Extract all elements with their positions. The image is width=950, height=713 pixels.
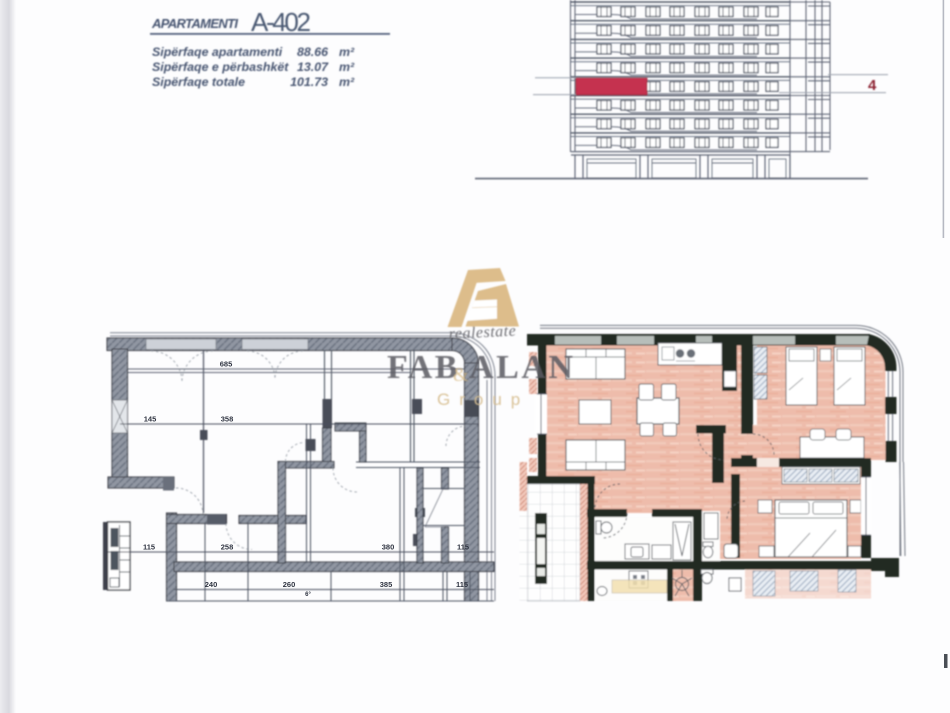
svg-text:115: 115: [143, 543, 155, 552]
svg-text:m²: m²: [339, 60, 355, 74]
svg-text:88.66: 88.66: [297, 45, 328, 59]
svg-text:m²: m²: [339, 45, 355, 59]
svg-text:FAB ALAN: FAB ALAN: [387, 349, 575, 386]
svg-text:Sipërfaqe e përbashkët: Sipërfaqe e përbashkët: [152, 60, 289, 74]
svg-text:6°: 6°: [305, 592, 311, 598]
svg-text:Sipërfaqe totale: Sipërfaqe totale: [152, 75, 245, 89]
svg-text:4: 4: [868, 77, 877, 94]
svg-text:Sipërfaqe apartamenti: Sipërfaqe apartamenti: [152, 45, 283, 59]
svg-text:685: 685: [220, 360, 233, 369]
svg-text:m²: m²: [339, 75, 355, 89]
svg-text:Group: Group: [437, 390, 529, 409]
svg-text:258: 258: [221, 543, 234, 552]
svg-text:&: &: [453, 364, 469, 386]
svg-text:realestate: realestate: [448, 322, 516, 343]
svg-text:101.73: 101.73: [290, 75, 328, 89]
svg-text:385: 385: [380, 580, 393, 589]
svg-text:240: 240: [205, 580, 218, 589]
svg-text:115: 115: [456, 580, 468, 589]
svg-text:115: 115: [457, 543, 469, 552]
svg-text:260: 260: [283, 580, 296, 589]
svg-text:358: 358: [221, 415, 234, 424]
svg-text:A-402: A-402: [251, 7, 311, 37]
svg-text:145: 145: [144, 415, 157, 424]
svg-text:13.07: 13.07: [297, 60, 329, 74]
svg-text:380: 380: [382, 543, 395, 552]
svg-text:APARTAMENTI: APARTAMENTI: [151, 16, 238, 31]
